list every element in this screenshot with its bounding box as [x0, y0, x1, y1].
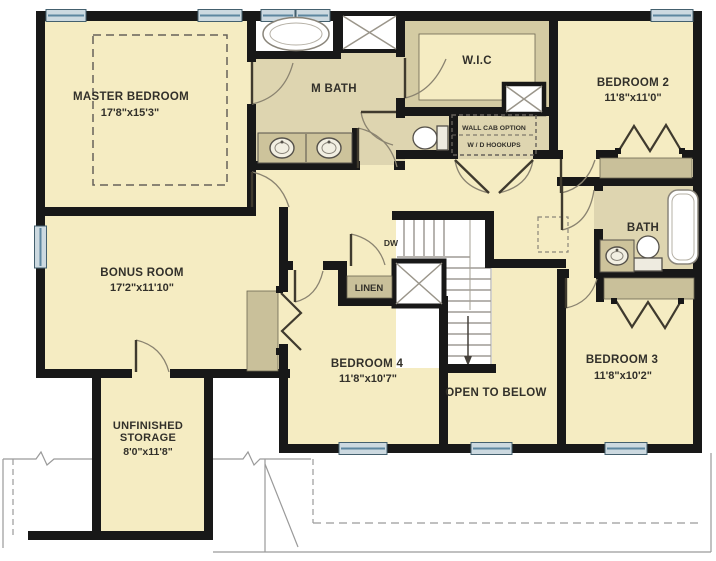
label-storage-1: UNFINISHED — [113, 420, 183, 432]
wic-chase — [504, 84, 544, 114]
window — [651, 10, 693, 22]
master-shower — [341, 14, 398, 51]
label-wic: W.I.C — [462, 55, 492, 67]
wall-stairs-right — [485, 211, 494, 268]
label-bedroom3: BEDROOM 3 — [586, 354, 658, 366]
sink — [317, 138, 341, 158]
label-bath: BATH — [627, 222, 659, 234]
bedroom2-closet — [600, 158, 692, 178]
label-dw: DW — [384, 238, 399, 248]
label-bedroom3-dims: 11'8"x10'2" — [594, 370, 652, 382]
wall-bed4-top-a — [279, 261, 293, 270]
stair-chase — [394, 261, 444, 306]
window — [339, 443, 387, 455]
wall-b2-south-a — [549, 150, 563, 159]
wall-bonus-bottom-a — [36, 369, 132, 378]
wall-bedroom2-west — [549, 11, 558, 159]
door-jamb — [679, 148, 685, 154]
label-master-bedroom: MASTER BEDROOM — [73, 91, 189, 103]
label-wall-cab-option: WALL CAB OPTION — [462, 125, 526, 132]
label-bonus-room: BONUS ROOM — [100, 267, 184, 279]
toilet — [413, 126, 448, 150]
bedroom3-closet — [604, 278, 694, 299]
wall-storage-left — [92, 378, 101, 540]
wall-wd-south-a — [396, 150, 454, 159]
label-bedroom4-dims: 11'8"x10'7" — [339, 373, 397, 385]
wall-stairs-top — [392, 211, 492, 220]
window — [35, 226, 47, 268]
bathtub — [668, 190, 698, 264]
bath-vanity — [600, 240, 634, 272]
outside-mid — [213, 378, 280, 561]
sink — [270, 138, 294, 158]
wall-storage-right — [204, 378, 213, 540]
bedroom4-closet — [247, 291, 278, 371]
master-bathtub — [263, 18, 329, 51]
wall-stairs-bottom — [439, 364, 496, 373]
wall-bed4-divider — [439, 296, 448, 453]
label-master-dims: 17'8"x15'3" — [101, 107, 160, 119]
wall-master-bottom — [36, 207, 253, 216]
wall-b3closet-stub — [596, 269, 604, 302]
wall-tub-nook — [253, 51, 338, 59]
door-jamb — [615, 148, 621, 154]
door-jamb — [611, 298, 617, 304]
label-wd-hookups: W / D HOOKUPS — [467, 142, 521, 149]
floor-plan: MASTER BEDROOM 17'8"x15'3" M BATH W.I.C … — [0, 0, 716, 561]
door-jamb — [276, 286, 283, 293]
wall-bath-west-a — [594, 177, 603, 191]
label-bonus-dims: 17'2"x11'10" — [110, 282, 174, 294]
label-open-to-below: OPEN TO BELOW — [445, 387, 546, 399]
label-mbath: M BATH — [311, 83, 357, 95]
door-jamb — [276, 348, 283, 355]
window — [605, 443, 647, 455]
wall-hall-south — [486, 259, 566, 268]
door-jamb — [678, 298, 684, 304]
window — [46, 10, 86, 22]
label-bedroom2: BEDROOM 2 — [597, 77, 669, 89]
wall-hall-west-b — [279, 344, 288, 453]
window — [198, 10, 242, 22]
wall-hall-west-a — [279, 207, 288, 292]
label-storage-dims: 8'0"x11'8" — [123, 446, 172, 458]
label-bedroom2-dims: 11'8"x11'0" — [604, 92, 661, 104]
wall-storage-bottom — [28, 531, 213, 540]
wall-left — [36, 11, 45, 378]
label-storage-2: STORAGE — [120, 432, 176, 444]
window — [471, 443, 512, 455]
floor-plan-drawing: MASTER BEDROOM 17'8"x15'3" M BATH W.I.C … — [0, 0, 716, 561]
wall-bedroom3-west — [557, 269, 566, 453]
label-linen: LINEN — [355, 283, 384, 294]
label-bedroom4: BEDROOM 4 — [331, 358, 404, 370]
